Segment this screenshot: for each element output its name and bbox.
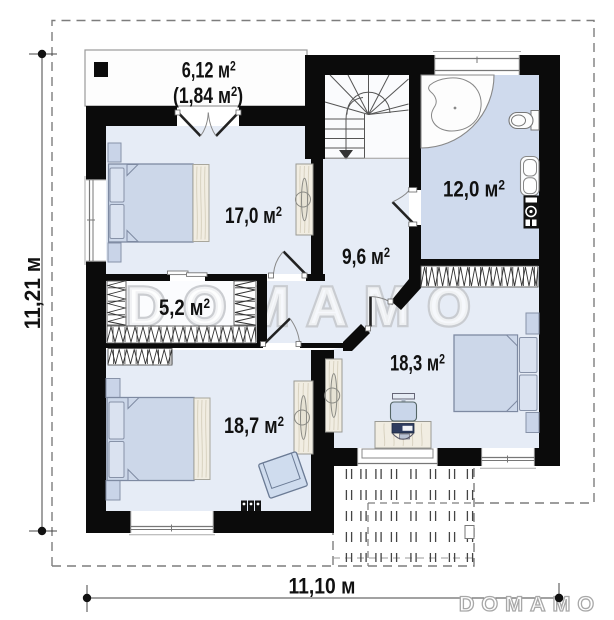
svg-text:18,3 м2: 18,3 м2 — [390, 351, 445, 376]
svg-text:12,0 м2: 12,0 м2 — [443, 177, 505, 202]
svg-text:11,21 м: 11,21 м — [19, 257, 45, 329]
svg-text:18,7 м2: 18,7 м2 — [224, 413, 284, 439]
svg-text:17,0 м2: 17,0 м2 — [225, 204, 282, 229]
svg-text:5,2 м2: 5,2 м2 — [159, 295, 210, 320]
svg-text:6,12 м2: 6,12 м2 — [182, 58, 236, 83]
svg-text:DOMAMO: DOMAMO — [459, 592, 601, 616]
svg-text:11,10 м: 11,10 м — [289, 574, 356, 598]
svg-text:9,6 м2: 9,6 м2 — [342, 245, 390, 270]
